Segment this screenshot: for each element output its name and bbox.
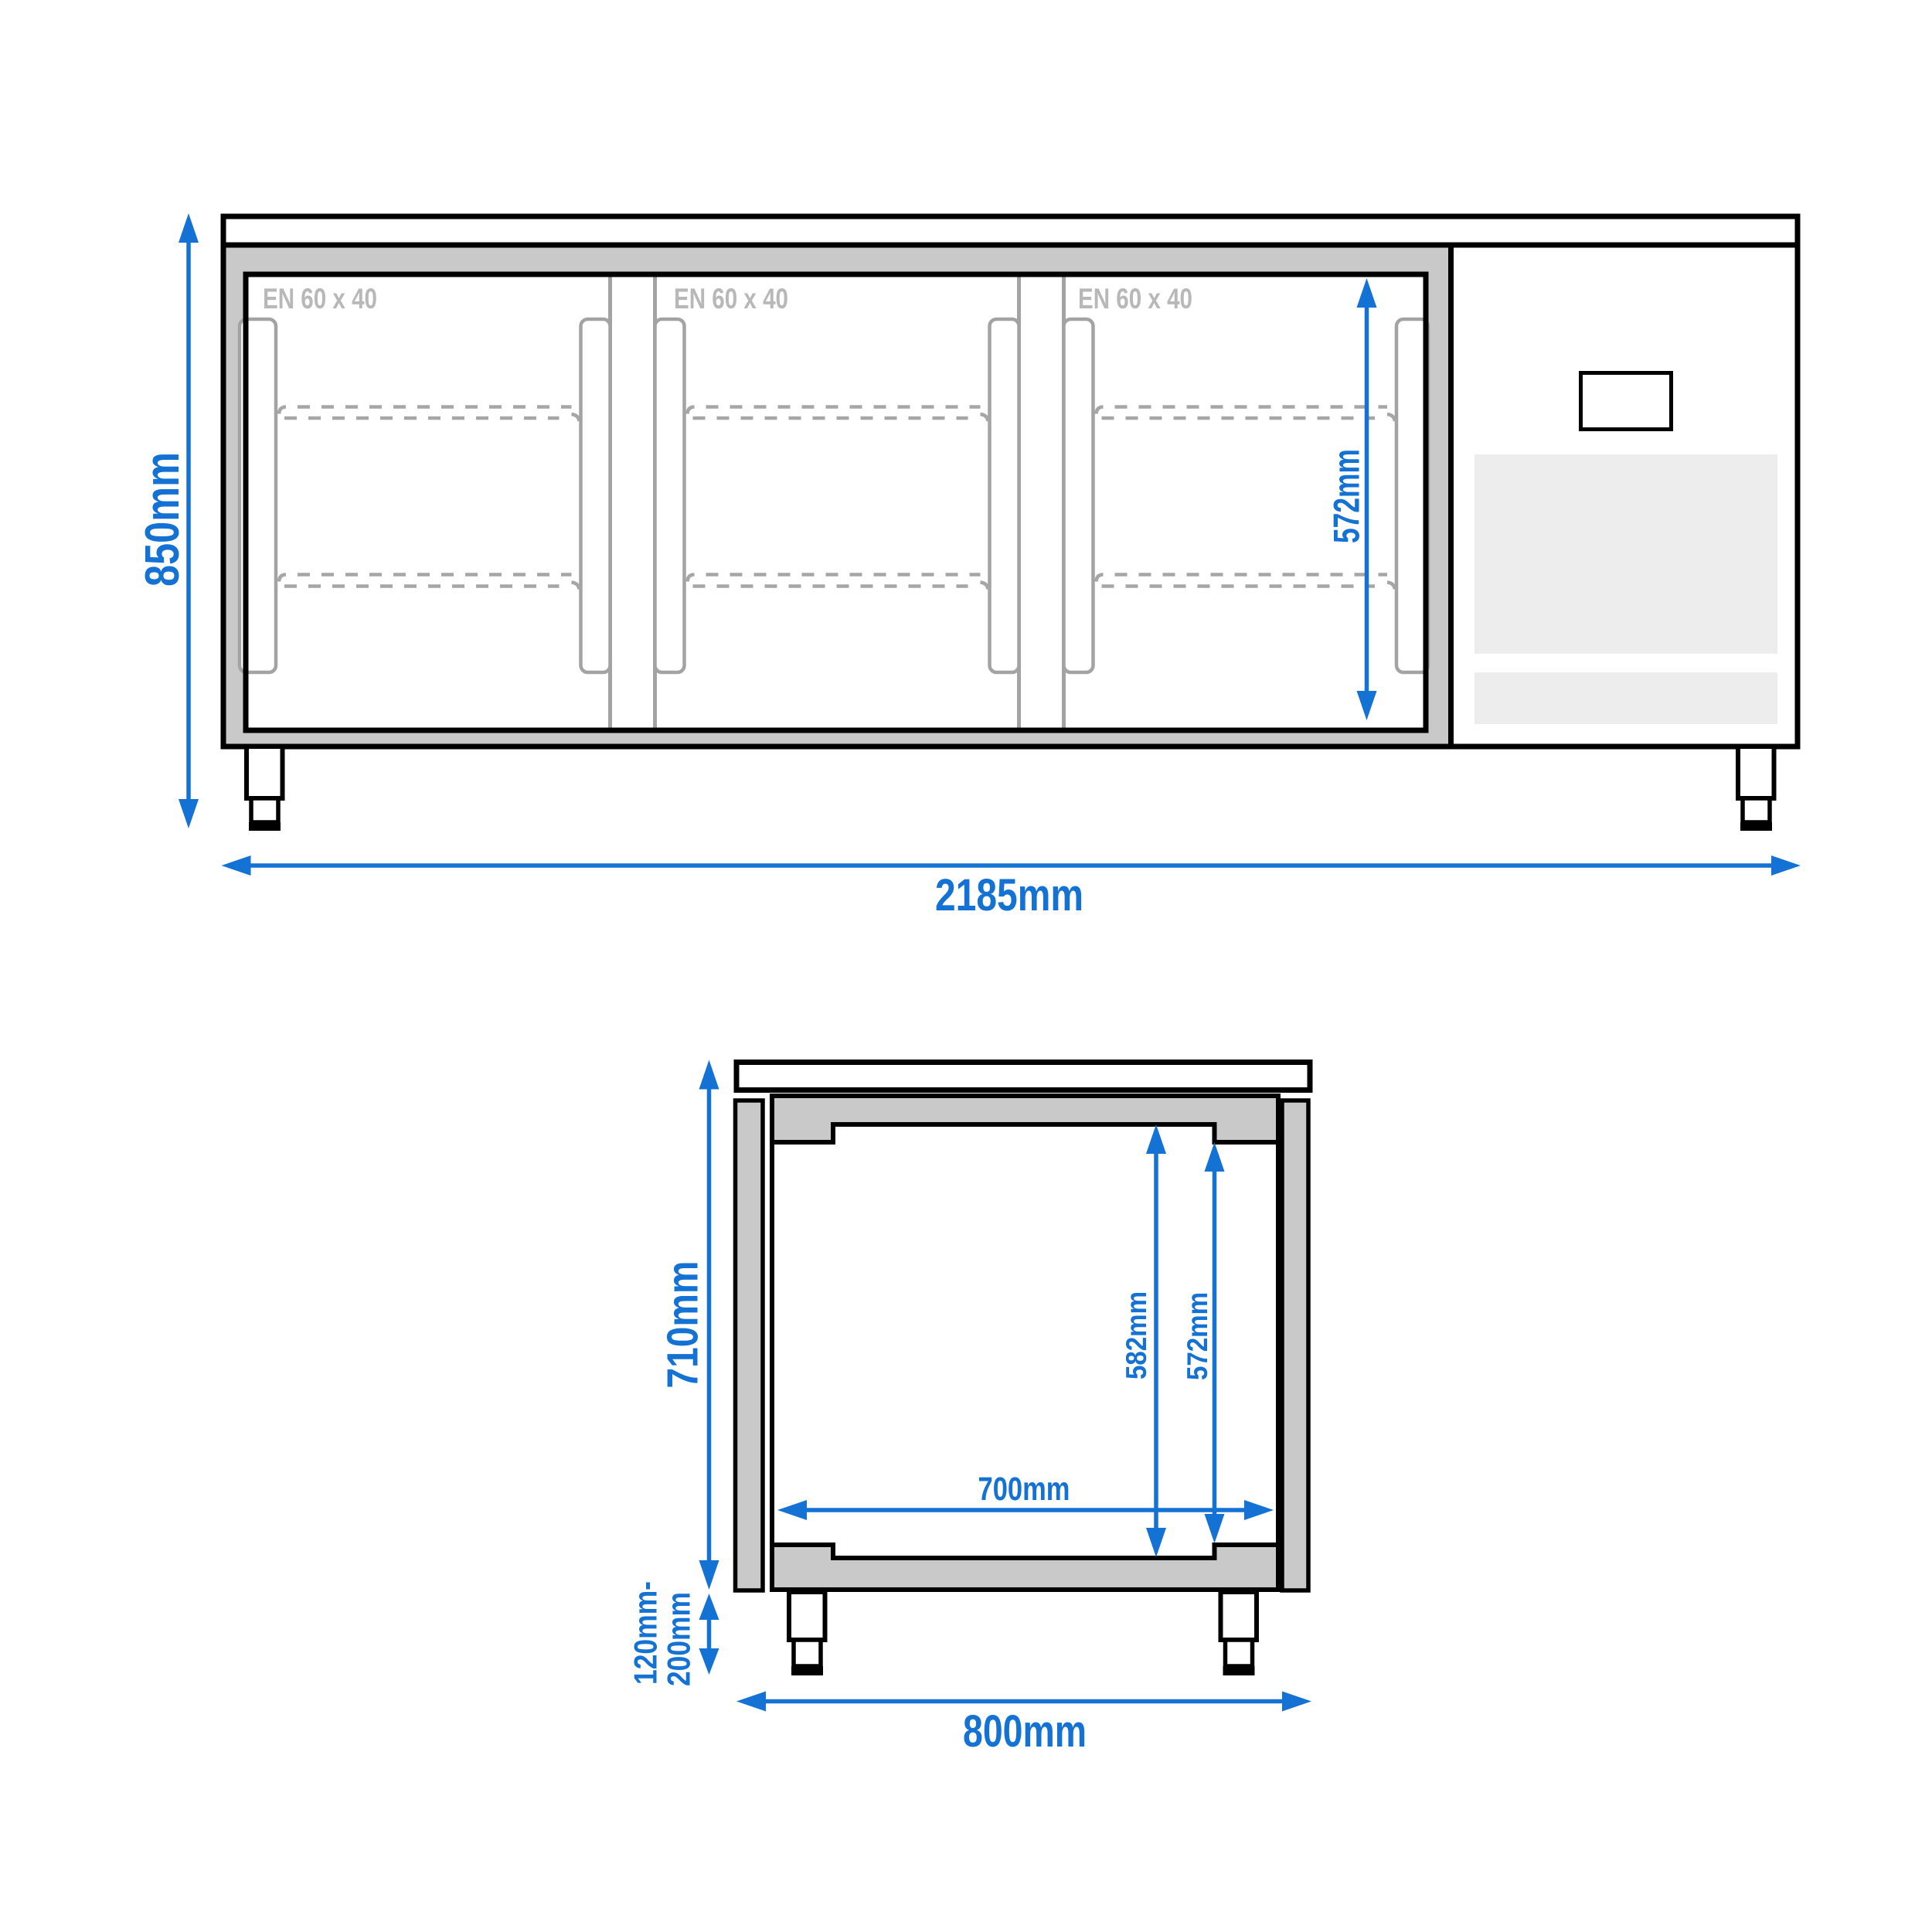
svg-text:710mm: 710mm <box>658 1261 708 1389</box>
svg-text:EN 60 x 40: EN 60 x 40 <box>674 283 788 315</box>
svg-text:120mm-: 120mm- <box>628 1581 664 1685</box>
svg-text:2185mm: 2185mm <box>935 870 1083 920</box>
svg-text:850mm: 850mm <box>136 452 189 587</box>
svg-text:582mm: 582mm <box>1120 1291 1152 1379</box>
svg-text:200mm: 200mm <box>661 1592 697 1686</box>
svg-text:700mm: 700mm <box>978 1471 1070 1508</box>
svg-text:572mm: 572mm <box>1326 449 1367 543</box>
svg-text:EN 60 x 40: EN 60 x 40 <box>1078 283 1192 315</box>
svg-text:572mm: 572mm <box>1181 1292 1213 1380</box>
svg-text:800mm: 800mm <box>963 1706 1087 1757</box>
svg-text:EN 60 x 40: EN 60 x 40 <box>263 283 377 315</box>
